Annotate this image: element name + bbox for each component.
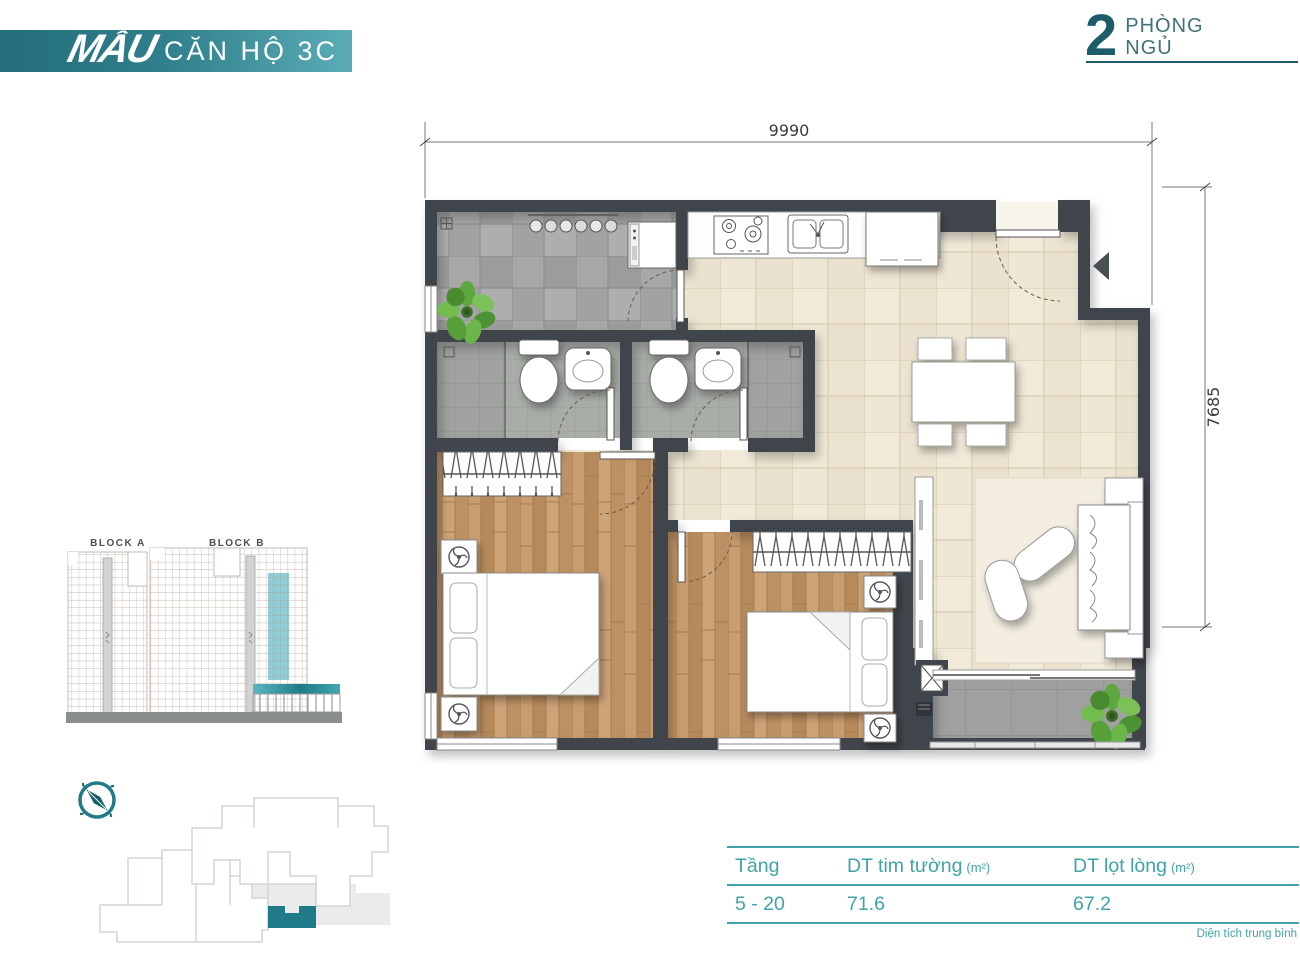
brand-logo: MẪU bbox=[64, 29, 159, 69]
sink-icon bbox=[565, 348, 611, 390]
toilet-icon bbox=[649, 340, 689, 403]
building-elevation: BLOCK A BLOCK B bbox=[55, 528, 355, 733]
dining-chair bbox=[966, 338, 1006, 360]
entry-door-leaf bbox=[996, 230, 1060, 237]
stove-icon bbox=[714, 216, 768, 254]
fan-icon bbox=[449, 704, 469, 724]
laundry-door-leaf bbox=[677, 270, 684, 322]
fan-icon bbox=[449, 547, 469, 567]
washer-icon bbox=[628, 222, 676, 268]
compass-icon bbox=[66, 769, 128, 831]
fan-icon bbox=[870, 718, 890, 738]
dimension-top-label: 9990 bbox=[769, 121, 810, 140]
toilet-icon bbox=[519, 340, 559, 403]
badge-line2: NGỦ bbox=[1125, 37, 1203, 59]
bathroom-1-door-leaf bbox=[607, 388, 614, 440]
kitchen-sink-icon bbox=[788, 215, 848, 253]
bedroom-1-door-leaf bbox=[600, 452, 655, 459]
col-floor-header: Tầng bbox=[735, 855, 847, 878]
pillow bbox=[862, 618, 887, 660]
bathroom-2-door-leaf bbox=[740, 388, 747, 440]
fan-icon bbox=[870, 582, 890, 602]
bedroom-count-label: PHÒNG NGỦ bbox=[1125, 15, 1203, 60]
fridge-icon bbox=[866, 212, 938, 266]
entrance-arrow-icon bbox=[1093, 252, 1109, 280]
table-value-row: 5 - 20 71.6 67.2 bbox=[727, 886, 1299, 922]
floor-plan: 9990 7685 bbox=[415, 118, 1225, 768]
dimension-right-label: 7685 bbox=[1204, 387, 1223, 428]
title-banner: MẪU CĂN HỘ 3C bbox=[0, 30, 352, 72]
pillow bbox=[450, 583, 477, 633]
col-gross-header: DT tim tường(m²) bbox=[847, 855, 1073, 878]
podium-highlight bbox=[253, 684, 340, 694]
col-net-header: DT lọt lòng(m²) bbox=[1073, 855, 1295, 878]
dining-chair bbox=[966, 424, 1006, 446]
table-border-bottom bbox=[727, 922, 1299, 924]
site-footprints bbox=[100, 798, 390, 942]
tv-console-icon bbox=[915, 477, 933, 665]
sliding-door bbox=[933, 670, 1135, 680]
pillow bbox=[862, 664, 887, 706]
pillow bbox=[450, 638, 477, 688]
kitchen bbox=[688, 212, 940, 266]
block-a-label: BLOCK A bbox=[90, 538, 146, 549]
bedroom-2-door-leaf bbox=[678, 532, 685, 582]
bedroom-count-number: 2 bbox=[1085, 12, 1117, 60]
wardrobe-icon bbox=[443, 452, 561, 496]
block-a bbox=[68, 552, 147, 715]
table-footnote: Diện tích trung bình bbox=[727, 928, 1299, 940]
banner-title: CĂN HỘ 3C bbox=[164, 36, 338, 67]
dining-chair bbox=[918, 424, 952, 446]
bedroom-2 bbox=[747, 532, 911, 742]
site-plan bbox=[60, 762, 405, 952]
wardrobe-icon bbox=[753, 532, 911, 572]
area-table: Tầng DT tim tường(m²) DT lọt lòng(m²) 5 … bbox=[727, 846, 1299, 940]
floor-range-value: 5 - 20 bbox=[735, 893, 847, 916]
podium-struts bbox=[253, 694, 340, 712]
net-area-value: 67.2 bbox=[1073, 893, 1295, 916]
dining-table-icon bbox=[912, 362, 1015, 422]
gross-area-value: 71.6 bbox=[847, 893, 1073, 916]
badge-line1: PHÒNG bbox=[1125, 15, 1203, 37]
badge-underline bbox=[1086, 61, 1298, 63]
table-header-row: Tầng DT tim tường(m²) DT lọt lòng(m²) bbox=[727, 848, 1299, 884]
dining-chair bbox=[918, 338, 952, 360]
apartment-floorplan-page: MẪU CĂN HỘ 3C 2 PHÒNG NGỦ bbox=[0, 0, 1300, 954]
bedroom-count-badge: 2 PHÒNG NGỦ bbox=[1085, 12, 1204, 60]
sink-icon bbox=[695, 348, 741, 390]
ground-line bbox=[66, 712, 342, 723]
block-b-label: BLOCK B bbox=[209, 538, 265, 549]
